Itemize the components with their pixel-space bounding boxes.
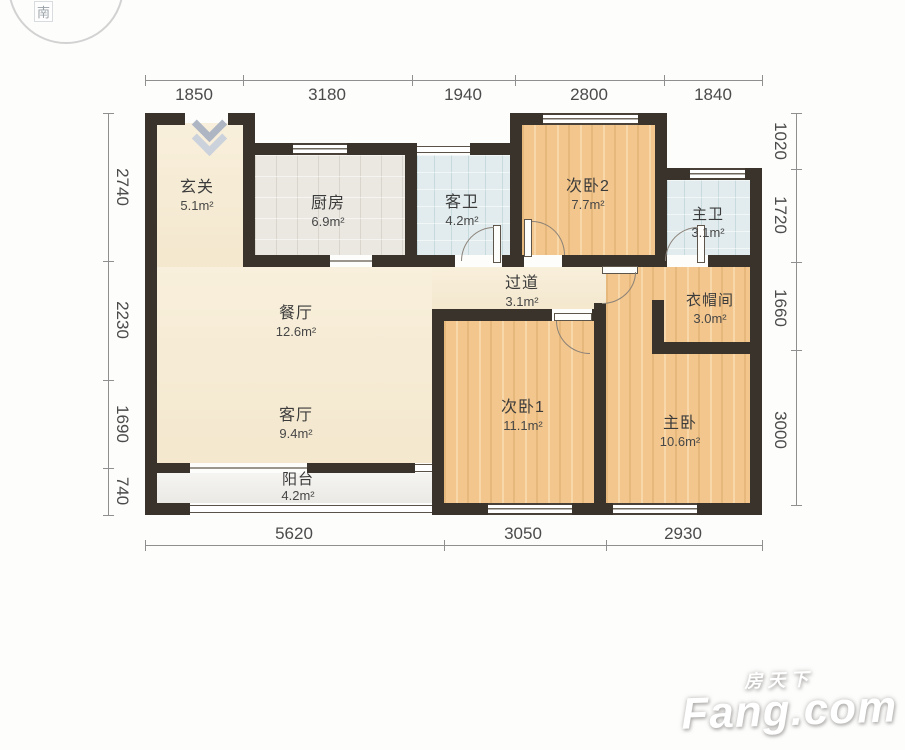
dim-left-3: 1690 <box>112 392 132 456</box>
room-name: 主卫 <box>658 206 758 225</box>
dim-line-top <box>145 80 762 81</box>
dim-tick <box>412 75 413 86</box>
bedroom2-window <box>543 113 638 125</box>
dim-top-2: 3180 <box>295 85 359 105</box>
wall <box>243 255 330 267</box>
dim-right-3: 1660 <box>770 276 790 340</box>
wall <box>502 255 524 267</box>
room-area: 3.1m² <box>472 294 572 310</box>
dim-line-right <box>796 113 797 505</box>
wall <box>432 503 488 515</box>
room-name: 次卧1 <box>473 398 573 418</box>
room-area: 6.9m² <box>278 214 378 230</box>
dim-left-4: 740 <box>112 459 132 523</box>
dim-bottom-2: 3050 <box>491 524 555 544</box>
wall <box>594 303 606 515</box>
wall <box>432 309 444 515</box>
room-label-bedroom1: 次卧1 11.1m² <box>473 398 573 434</box>
dim-tick <box>791 113 802 114</box>
dim-tick <box>103 261 114 262</box>
dim-tick <box>606 540 607 551</box>
dim-right-2: 1720 <box>770 183 790 247</box>
kitchen-opening-line <box>330 260 372 262</box>
wall <box>145 503 190 515</box>
room-name: 厨房 <box>278 194 378 214</box>
dim-top-1: 1850 <box>162 85 226 105</box>
dim-line-bottom <box>145 545 762 546</box>
watermark: 房天下 Fang.com <box>680 662 898 739</box>
dim-tick <box>762 540 763 551</box>
wall <box>145 113 157 515</box>
dim-top-4: 2800 <box>557 85 621 105</box>
room-area: 12.6m² <box>246 324 346 340</box>
room-name: 过道 <box>472 274 572 294</box>
room-label-dining: 餐厅 12.6m² <box>246 304 346 340</box>
room-area: 4.2m² <box>412 213 512 229</box>
room-name: 阳台 <box>248 472 348 489</box>
room-area: 3.1m² <box>658 225 758 241</box>
wall <box>145 113 185 125</box>
dim-tick <box>791 350 802 351</box>
compass-circle <box>8 0 124 44</box>
dim-right-1: 1020 <box>770 109 790 173</box>
room-name: 客卫 <box>412 193 512 213</box>
room-area: 11.1m² <box>473 418 573 434</box>
room-name: 衣帽间 <box>660 292 760 311</box>
room-label-entry: 玄关 5.1m² <box>147 178 247 214</box>
wall <box>697 503 762 515</box>
dim-tick <box>444 540 445 551</box>
dim-tick <box>791 169 802 170</box>
dim-left-1: 2740 <box>112 155 132 219</box>
kitchen-window <box>293 143 347 155</box>
room-area: 5.1m² <box>147 198 247 214</box>
room-name: 餐厅 <box>246 304 346 324</box>
wall <box>347 143 407 155</box>
room-area: 4.2m² <box>248 489 348 503</box>
room-area: 7.7m² <box>538 197 638 213</box>
wall <box>655 113 667 267</box>
bedroom2-door-leaf <box>524 219 532 257</box>
dim-tick <box>762 75 763 86</box>
room-label-master-bedroom: 主卧 10.6m² <box>630 414 730 450</box>
dim-right-4: 3000 <box>770 398 790 462</box>
floor-plan: 南 <box>0 0 905 750</box>
dim-tick <box>243 75 244 86</box>
wall <box>510 113 522 267</box>
dim-tick <box>145 75 146 86</box>
dim-tick <box>103 113 114 114</box>
watermark-en: Fang.com <box>681 682 898 740</box>
wall <box>372 255 455 267</box>
compass-south-label: 南 <box>34 1 53 22</box>
room-label-kitchen: 厨房 6.9m² <box>278 194 378 230</box>
dim-tick <box>515 75 516 86</box>
dim-tick <box>791 505 802 506</box>
room-label-guest-bath: 客卫 4.2m² <box>412 193 512 229</box>
dim-left-2: 2230 <box>112 288 132 352</box>
room-label-living: 客厅 9.4m² <box>246 406 346 442</box>
wall <box>572 503 613 515</box>
room-name: 主卧 <box>630 414 730 434</box>
window <box>415 464 432 472</box>
wall <box>432 309 552 321</box>
master-bath-window <box>690 168 745 180</box>
bedroom1-window <box>488 503 572 515</box>
room-area: 9.4m² <box>246 426 346 442</box>
room-name: 玄关 <box>147 178 247 198</box>
guest-bath-door-leaf <box>493 225 501 263</box>
dim-bottom-3: 2930 <box>651 524 715 544</box>
room-area: 10.6m² <box>630 434 730 450</box>
balcony-opening-line <box>190 467 307 469</box>
room-label-hallway: 过道 3.1m² <box>472 274 572 310</box>
room-label-master-bath: 主卫 3.1m² <box>658 206 758 241</box>
room-name: 客厅 <box>246 406 346 426</box>
room-label-bedroom2: 次卧2 7.7m² <box>538 177 638 213</box>
dim-tick <box>791 262 802 263</box>
dim-bottom-1: 5620 <box>262 524 326 544</box>
bedroom1-door-leaf <box>554 313 592 321</box>
room-name: 次卧2 <box>538 177 638 197</box>
master-bedroom-window <box>613 503 697 515</box>
wall <box>708 255 762 267</box>
room-label-cloakroom: 衣帽间 3.0m² <box>660 292 760 327</box>
dim-tick <box>145 540 146 551</box>
room-label-balcony: 阳台 4.2m² <box>248 472 348 503</box>
dim-line-left <box>108 113 109 515</box>
wall <box>652 342 762 354</box>
dim-top-3: 1940 <box>431 85 495 105</box>
dim-tick <box>664 75 665 86</box>
wall <box>157 463 190 473</box>
guest-bath-window <box>417 146 470 153</box>
dim-top-5: 1840 <box>681 85 745 105</box>
dim-tick <box>103 380 114 381</box>
room-area: 3.0m² <box>660 311 760 327</box>
balcony-glass-wall <box>190 505 432 513</box>
